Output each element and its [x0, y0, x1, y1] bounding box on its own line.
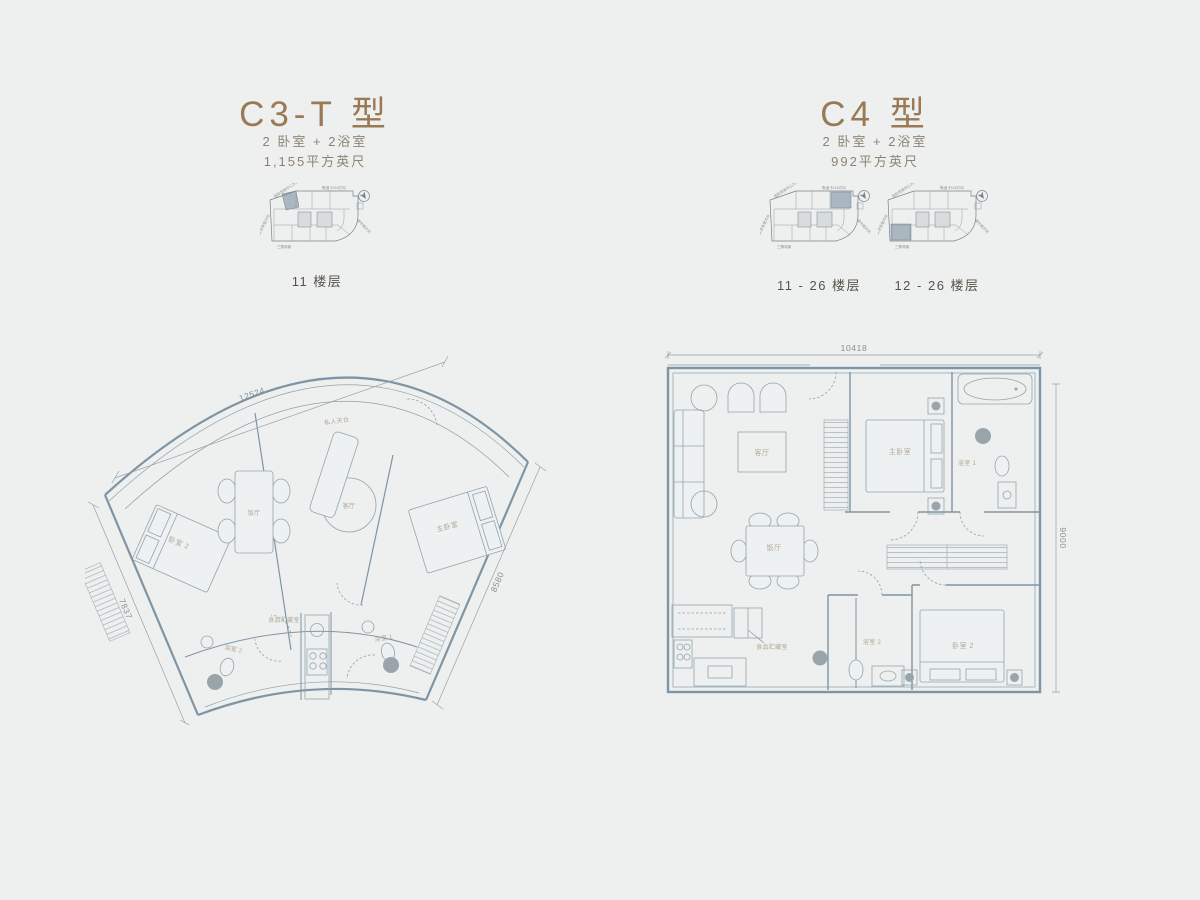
unit-c3t-area: 1,155平方英尺 [130, 151, 500, 170]
tower-block-icon [298, 212, 311, 227]
compass-icon [856, 188, 871, 203]
toilet-icon [849, 660, 863, 680]
toilet-icon [995, 456, 1009, 476]
tower-block-icon [935, 212, 950, 227]
kitchen-counter-icon [305, 615, 329, 699]
kitchen-counter-icon [672, 605, 762, 686]
room-label-bath1: 浴室 1 [374, 632, 394, 643]
keyplan-label-right: 城中城方向 [974, 218, 990, 235]
c3t-keyplan-map: 国际贸易中心方向 默迪卡118方向 武吉免登方向 城中城方向 三藩湾景 [260, 183, 372, 261]
dimension-top: 12524 [112, 356, 448, 483]
keyplan-label-top-right: 默迪卡118方向 [822, 185, 846, 190]
door-swing [890, 512, 918, 540]
armchair-icon [728, 383, 754, 412]
floor-drain-icon [813, 651, 828, 666]
svg-text:12524: 12524 [238, 385, 266, 403]
sink-icon [872, 666, 904, 686]
plant-icon [691, 385, 717, 411]
sink-icon [362, 621, 374, 633]
keyplan-label-left: 武吉免登方向 [878, 213, 889, 235]
svg-text:10418: 10418 [841, 343, 868, 353]
door-swing [809, 372, 836, 399]
c4-keyplan-map-2: 国际贸易中心方向 默迪卡118方向 武吉免登方向 城中城方向 三藩湾景 [878, 183, 990, 261]
room-label-living: 客厅 [755, 448, 770, 457]
room-divider [361, 455, 393, 605]
keyplan-label-right: 城中城方向 [856, 218, 872, 235]
floor-drain-icon [207, 674, 223, 690]
room-label-dining: 饭厅 [767, 543, 782, 552]
compass-icon [356, 188, 371, 203]
c3t-keyplan-caption: 11 楼层 [237, 271, 397, 290]
unit-c3t-title: C3-T 型 [130, 86, 500, 137]
c4-floorplan: 10418 9000 客厅 主卧室 浴室 1 饭厅 食品贮藏室 浴室 2 卧室 … [650, 340, 1080, 715]
c4-keyplan-caption-2: 12 - 26 楼层 [857, 275, 1017, 294]
room-label-living: 客厅 [343, 502, 356, 510]
svg-text:9000: 9000 [1058, 527, 1068, 548]
bed-icon [408, 486, 506, 573]
keyplan-label-bottom: 三藩湾景 [277, 244, 292, 249]
keyplan-label-top-right: 默迪卡118方向 [940, 185, 964, 190]
sink-icon [201, 636, 213, 648]
door-swing [960, 512, 984, 536]
room-label-bath2: 浴室 2 [224, 643, 244, 655]
armchair-icon [760, 383, 786, 412]
ledge-hatch [410, 596, 460, 675]
keyplan-label-right: 城中城方向 [356, 218, 372, 235]
room-label-bedroom2: 卧室 2 [952, 641, 974, 650]
svg-text:8580: 8580 [488, 570, 506, 594]
room-label-master: 主卧室 [889, 447, 912, 456]
c3t-floorplan: 12524 7837 8580 私人天台 卧室 2 饭厅 客厅 主卧室 食品贮藏… [85, 355, 555, 725]
living-rug-icon [309, 431, 376, 532]
c3t-highlighted-block [282, 191, 299, 210]
room-label-pantry: 食品贮藏室 [268, 616, 300, 624]
unit-c4-spec: 2 卧室 + 2浴室 [690, 131, 1060, 150]
keyplan-label-bottom: 三藩湾景 [895, 244, 910, 249]
door-swing [858, 571, 882, 595]
room-label-dining: 饭厅 [248, 509, 261, 517]
room-label-bath1: 浴室 1 [958, 459, 977, 467]
door-swing [337, 583, 363, 605]
floor-drain-icon [975, 428, 991, 444]
c4-keyplan-map-1: 国际贸易中心方向 默迪卡118方向 武吉免登方向 城中城方向 三藩湾景 [760, 183, 872, 261]
tower-block-icon [817, 212, 832, 227]
compass-icon [974, 188, 989, 203]
dimension-top: 10418 [665, 343, 1043, 359]
unit-c3t-spec: 2 卧室 + 2浴室 [130, 131, 500, 150]
bathtub-icon [958, 374, 1032, 404]
keyplan-label-left: 武吉免登方向 [260, 213, 271, 235]
keyplan-label-top-right: 默迪卡118方向 [322, 185, 346, 190]
c4-highlighted-block-2 [891, 224, 911, 240]
wardrobe-hatch [824, 420, 848, 510]
bottom-arc-wall [198, 689, 426, 715]
keyplan-label-left: 武吉免登方向 [760, 213, 771, 235]
door-swing [347, 655, 375, 679]
pantry-leader-line [748, 630, 764, 643]
c4-highlighted-block-1 [831, 192, 851, 208]
room-label-pantry: 食品贮藏室 [756, 643, 788, 651]
outer-arc-wall [105, 378, 528, 495]
bed-icon [866, 420, 944, 492]
sink-icon [998, 482, 1016, 508]
tower-block-icon [317, 212, 332, 227]
floor-drain-icon [383, 657, 399, 673]
unit-c4-title: C4 型 [690, 86, 1060, 137]
keyplan-label-bottom: 三藩湾景 [777, 244, 792, 249]
room-label-terrace: 私人天台 [324, 415, 350, 426]
door-swing [255, 639, 281, 661]
floorplan-brochure: C3-T 型 2 卧室 + 2浴室 1,155平方英尺 国际贸易中心方向 默迪卡… [0, 0, 1200, 900]
sofa-icon [674, 410, 704, 518]
tower-block-icon [798, 212, 811, 227]
room-label-bath2: 浴室 2 [863, 638, 882, 646]
dimension-right: 9000 [1052, 384, 1068, 692]
toilet-icon [218, 656, 236, 677]
unit-c4-area: 992平方英尺 [690, 151, 1060, 170]
tower-block-icon [916, 212, 929, 227]
